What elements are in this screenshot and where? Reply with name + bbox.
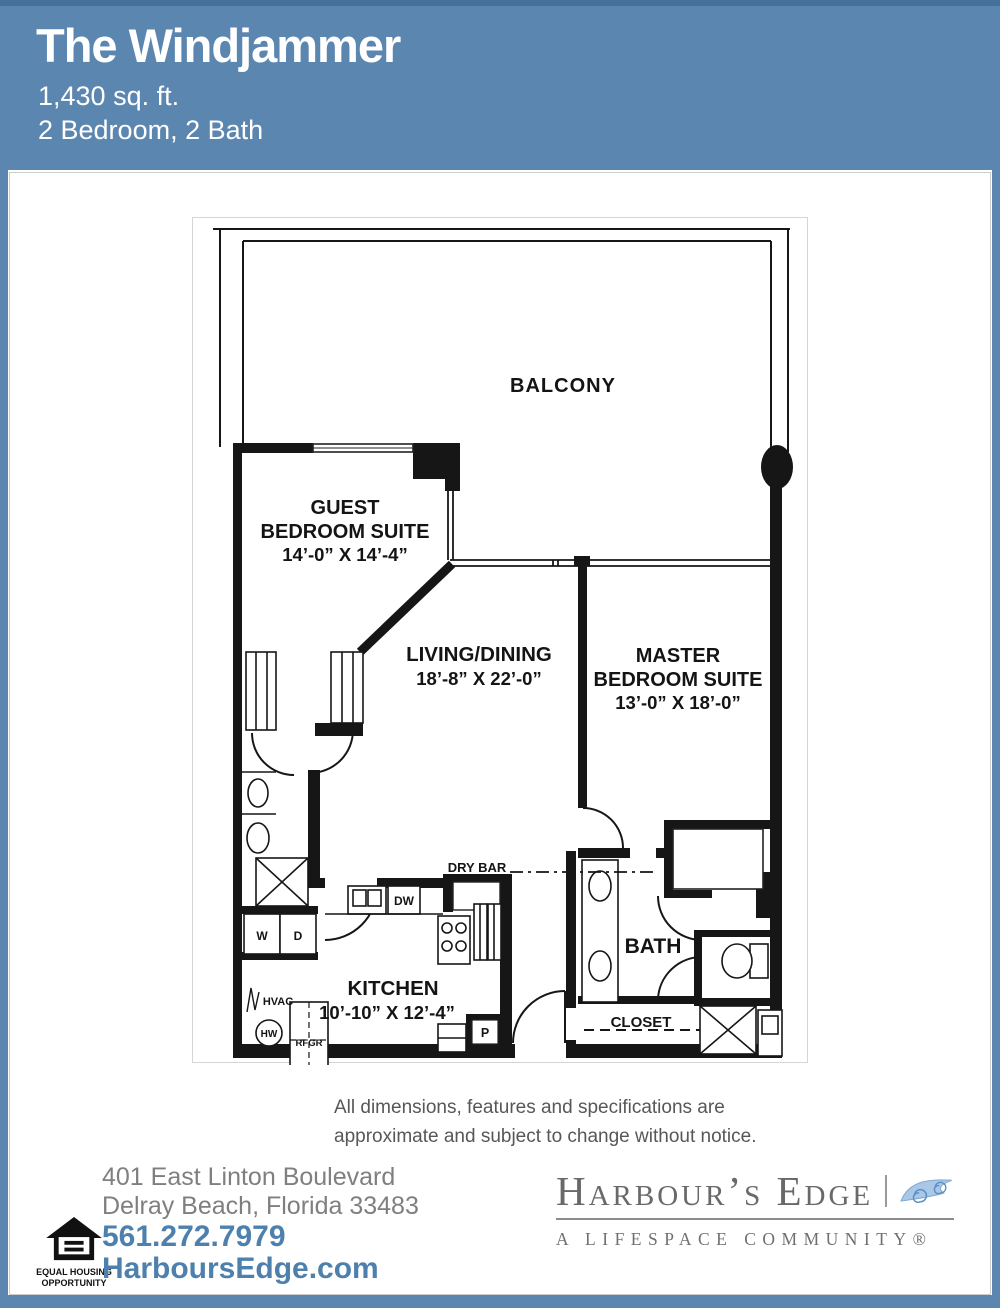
- floor-plan-drawing: BALCONY GUEST BEDROOM SUITE 14’-0” X 14’…: [190, 215, 810, 1065]
- label-hvac: HVAC: [263, 996, 293, 1008]
- disclaimer-line2: approximate and subject to change withou…: [334, 1122, 757, 1151]
- brand-tagline: A LIFESPACE COMMUNITY®: [556, 1229, 956, 1250]
- disclaimer: All dimensions, features and specificati…: [334, 1093, 757, 1151]
- label-closet: CLOSET: [611, 1014, 672, 1031]
- brand-block: Harbour’s Edge A LIFESPACE COMMUNITY®: [556, 1168, 956, 1250]
- label-living-line1: LIVING/DINING: [406, 643, 552, 666]
- wave-icon: [897, 1168, 956, 1214]
- disclaimer-line1: All dimensions, features and specificati…: [334, 1093, 757, 1122]
- label-guest-dims: 14’-0” X 14’-4”: [282, 544, 407, 565]
- area-subtitle: 1,430 sq. ft.: [38, 81, 179, 112]
- page-title: The Windjammer: [36, 18, 400, 73]
- label-refrigerator: RFGR: [296, 1038, 323, 1049]
- label-water-heater: HW: [261, 1029, 278, 1040]
- header-banner: The Windjammer 1,430 sq. ft. 2 Bedroom, …: [0, 0, 1000, 170]
- brand-name: Harbour’s Edge: [556, 1169, 873, 1213]
- label-dry-bar: DRY BAR: [448, 860, 507, 875]
- address-line2: Delray Beach, Florida 33483: [102, 1192, 419, 1221]
- phone-link[interactable]: 561.272.7979: [102, 1221, 419, 1253]
- label-master-line1: MASTER: [636, 645, 721, 667]
- page-border-right: [992, 0, 1000, 1308]
- label-guest-line2: BEDROOM SUITE: [261, 521, 430, 543]
- label-dryer: D: [294, 929, 303, 943]
- label-kitchen-line1: KITCHEN: [347, 977, 438, 1000]
- page-border-bottom: [0, 1295, 1000, 1308]
- label-pantry: P: [481, 1026, 489, 1040]
- page-border-left: [0, 0, 8, 1308]
- equal-housing-house-icon: [45, 1216, 103, 1262]
- brand-divider: [885, 1175, 887, 1207]
- brand-rule: [556, 1218, 954, 1220]
- label-master-dims: 13’-0” X 18’-0”: [615, 692, 740, 713]
- label-bath: BATH: [625, 935, 682, 958]
- contact-block: 401 East Linton Boulevard Delray Beach, …: [102, 1163, 419, 1285]
- config-subtitle: 2 Bedroom, 2 Bath: [38, 115, 263, 146]
- label-living-dims: 18’-8” X 22’-0”: [416, 668, 541, 689]
- label-balcony: BALCONY: [510, 375, 616, 397]
- label-kitchen-dims: 10’-10” X 12’-4”: [319, 1002, 455, 1023]
- page-border-top: [0, 0, 1000, 6]
- flyer-page: The Windjammer 1,430 sq. ft. 2 Bedroom, …: [0, 0, 1000, 1308]
- label-guest-line1: GUEST: [311, 497, 380, 519]
- website-link[interactable]: HarboursEdge.com: [102, 1253, 419, 1285]
- label-washer: W: [256, 929, 268, 943]
- label-dishwasher: DW: [394, 894, 415, 908]
- address-line1: 401 East Linton Boulevard: [102, 1163, 419, 1192]
- label-master-line2: BEDROOM SUITE: [594, 669, 763, 691]
